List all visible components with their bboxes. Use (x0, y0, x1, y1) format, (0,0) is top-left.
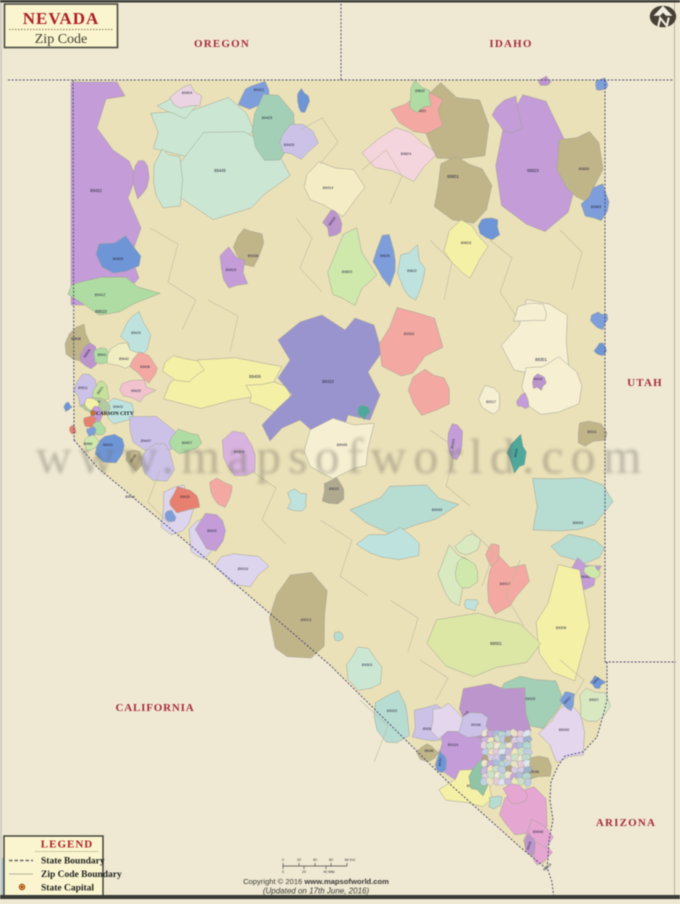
svg-text:89006: 89006 (556, 626, 567, 630)
svg-text:(Updated on 17th June, 2016): (Updated on 17th June, 2016) (263, 887, 370, 896)
svg-text:89020: 89020 (387, 709, 398, 713)
svg-text:40 Mile: 40 Mile (323, 870, 335, 874)
svg-text:89832: 89832 (415, 89, 425, 93)
svg-text:89001: 89001 (490, 641, 502, 646)
svg-text:89445: 89445 (214, 168, 226, 173)
svg-text:89830: 89830 (579, 167, 590, 171)
svg-text:89441: 89441 (98, 353, 107, 357)
svg-text:89013: 89013 (301, 618, 312, 622)
svg-text:State Boundary: State Boundary (41, 857, 105, 867)
svg-text:State Capital: State Capital (41, 884, 94, 894)
svg-text:89017: 89017 (500, 582, 511, 586)
svg-text:89166: 89166 (471, 723, 481, 727)
svg-text:89429: 89429 (131, 389, 141, 393)
svg-text:89824: 89824 (401, 152, 412, 156)
svg-text:20: 20 (302, 870, 306, 874)
svg-text:89420: 89420 (207, 529, 217, 533)
svg-text:89301: 89301 (535, 357, 547, 362)
svg-text:89820: 89820 (342, 270, 353, 274)
svg-text:NEVADA: NEVADA (23, 9, 100, 28)
svg-text:89318: 89318 (534, 377, 543, 381)
svg-text:0: 0 (282, 870, 284, 874)
svg-text:89049: 89049 (432, 508, 443, 512)
svg-text:OREGON: OREGON (194, 38, 250, 50)
svg-text:89025: 89025 (525, 697, 536, 701)
svg-text:Zip Code Boundary: Zip Code Boundary (41, 870, 122, 880)
svg-text:89022: 89022 (329, 487, 339, 491)
svg-text:0: 0 (282, 858, 284, 862)
svg-text:www.mapsofworld.com: www.mapsofworld.com (35, 428, 648, 484)
svg-text:89061: 89061 (438, 757, 443, 766)
svg-text:89010: 89010 (238, 567, 249, 571)
svg-text:80 Km: 80 Km (345, 858, 355, 862)
svg-text:89007: 89007 (589, 698, 599, 702)
svg-text:89625: 89625 (380, 254, 390, 258)
svg-text:89003: 89003 (362, 663, 373, 667)
svg-text:89425: 89425 (262, 116, 273, 120)
svg-text:89403: 89403 (113, 405, 123, 409)
svg-text:89419: 89419 (226, 268, 237, 272)
svg-text:IDAHO: IDAHO (489, 38, 532, 50)
svg-text:89815: 89815 (461, 241, 472, 245)
svg-text:89424: 89424 (131, 331, 141, 335)
svg-text:89043: 89043 (573, 521, 584, 525)
svg-text:ARIZONA: ARIZONA (596, 817, 656, 829)
svg-text:89048: 89048 (425, 749, 434, 753)
svg-text:89426: 89426 (284, 143, 295, 147)
svg-text:89406: 89406 (249, 374, 261, 379)
svg-text:89422: 89422 (90, 188, 102, 193)
svg-text:89421: 89421 (254, 88, 265, 92)
svg-text:89415: 89415 (180, 495, 190, 499)
svg-text:20: 20 (297, 858, 301, 862)
svg-text:89510: 89510 (95, 309, 107, 314)
svg-text:89124: 89124 (448, 743, 459, 747)
svg-text:89408: 89408 (140, 365, 150, 369)
svg-text:89801: 89801 (447, 174, 459, 179)
svg-text:89412: 89412 (95, 293, 106, 297)
svg-text:CALIFORNIA: CALIFORNIA (116, 702, 195, 714)
svg-text:89040: 89040 (559, 728, 570, 732)
svg-text:89442: 89442 (119, 357, 129, 361)
svg-text:89438: 89438 (248, 254, 259, 258)
svg-text:89622: 89622 (407, 269, 417, 273)
svg-text:60: 60 (329, 858, 333, 862)
svg-text:89404: 89404 (182, 91, 193, 95)
svg-text:89310: 89310 (322, 379, 334, 384)
svg-text:Zip Code: Zip Code (35, 32, 88, 47)
svg-text:89316: 89316 (404, 332, 415, 336)
svg-text:89883: 89883 (591, 205, 602, 209)
svg-text:UTAH: UTAH (627, 377, 663, 389)
svg-text:89511: 89511 (78, 386, 88, 390)
svg-text:Copyright © 2016 www.mapsofwor: Copyright © 2016 www.mapsofworld.com (243, 877, 389, 886)
svg-text:89414: 89414 (323, 186, 334, 190)
svg-text:89317: 89317 (486, 400, 496, 404)
svg-text:89046: 89046 (533, 830, 544, 834)
svg-text:40: 40 (313, 858, 317, 862)
svg-text:LEGEND: LEGEND (41, 839, 93, 851)
svg-text:89823: 89823 (527, 168, 539, 173)
svg-text:CARSON CITY: CARSON CITY (96, 411, 134, 417)
svg-text:89508: 89508 (71, 337, 81, 341)
svg-text:89405: 89405 (113, 257, 124, 261)
